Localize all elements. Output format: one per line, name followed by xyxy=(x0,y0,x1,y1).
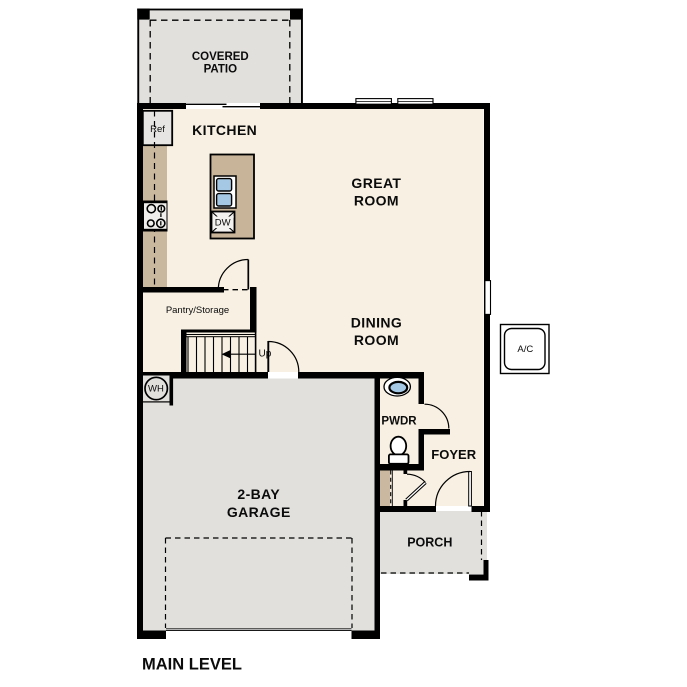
svg-text:PORCH: PORCH xyxy=(407,535,452,549)
svg-text:Ref: Ref xyxy=(150,124,165,135)
svg-text:WH: WH xyxy=(148,384,164,395)
svg-text:PWDR: PWDR xyxy=(381,415,417,427)
svg-text:ROOM: ROOM xyxy=(354,332,399,348)
svg-text:KITCHEN: KITCHEN xyxy=(192,122,257,138)
svg-text:2-BAY: 2-BAY xyxy=(237,486,280,502)
svg-text:PATIO: PATIO xyxy=(204,64,237,76)
svg-text:Pantry/Storage: Pantry/Storage xyxy=(166,305,229,316)
svg-text:A/C: A/C xyxy=(517,344,533,355)
svg-text:MAIN LEVEL: MAIN LEVEL xyxy=(142,656,242,674)
svg-text:Up: Up xyxy=(259,348,272,359)
svg-text:DINING: DINING xyxy=(351,314,402,330)
svg-text:DW: DW xyxy=(215,217,231,228)
svg-text:GREAT: GREAT xyxy=(351,175,401,191)
svg-text:ROOM: ROOM xyxy=(354,193,399,209)
svg-text:GARAGE: GARAGE xyxy=(227,504,291,520)
svg-text:COVERED: COVERED xyxy=(192,51,249,63)
svg-text:FOYER: FOYER xyxy=(431,447,476,462)
